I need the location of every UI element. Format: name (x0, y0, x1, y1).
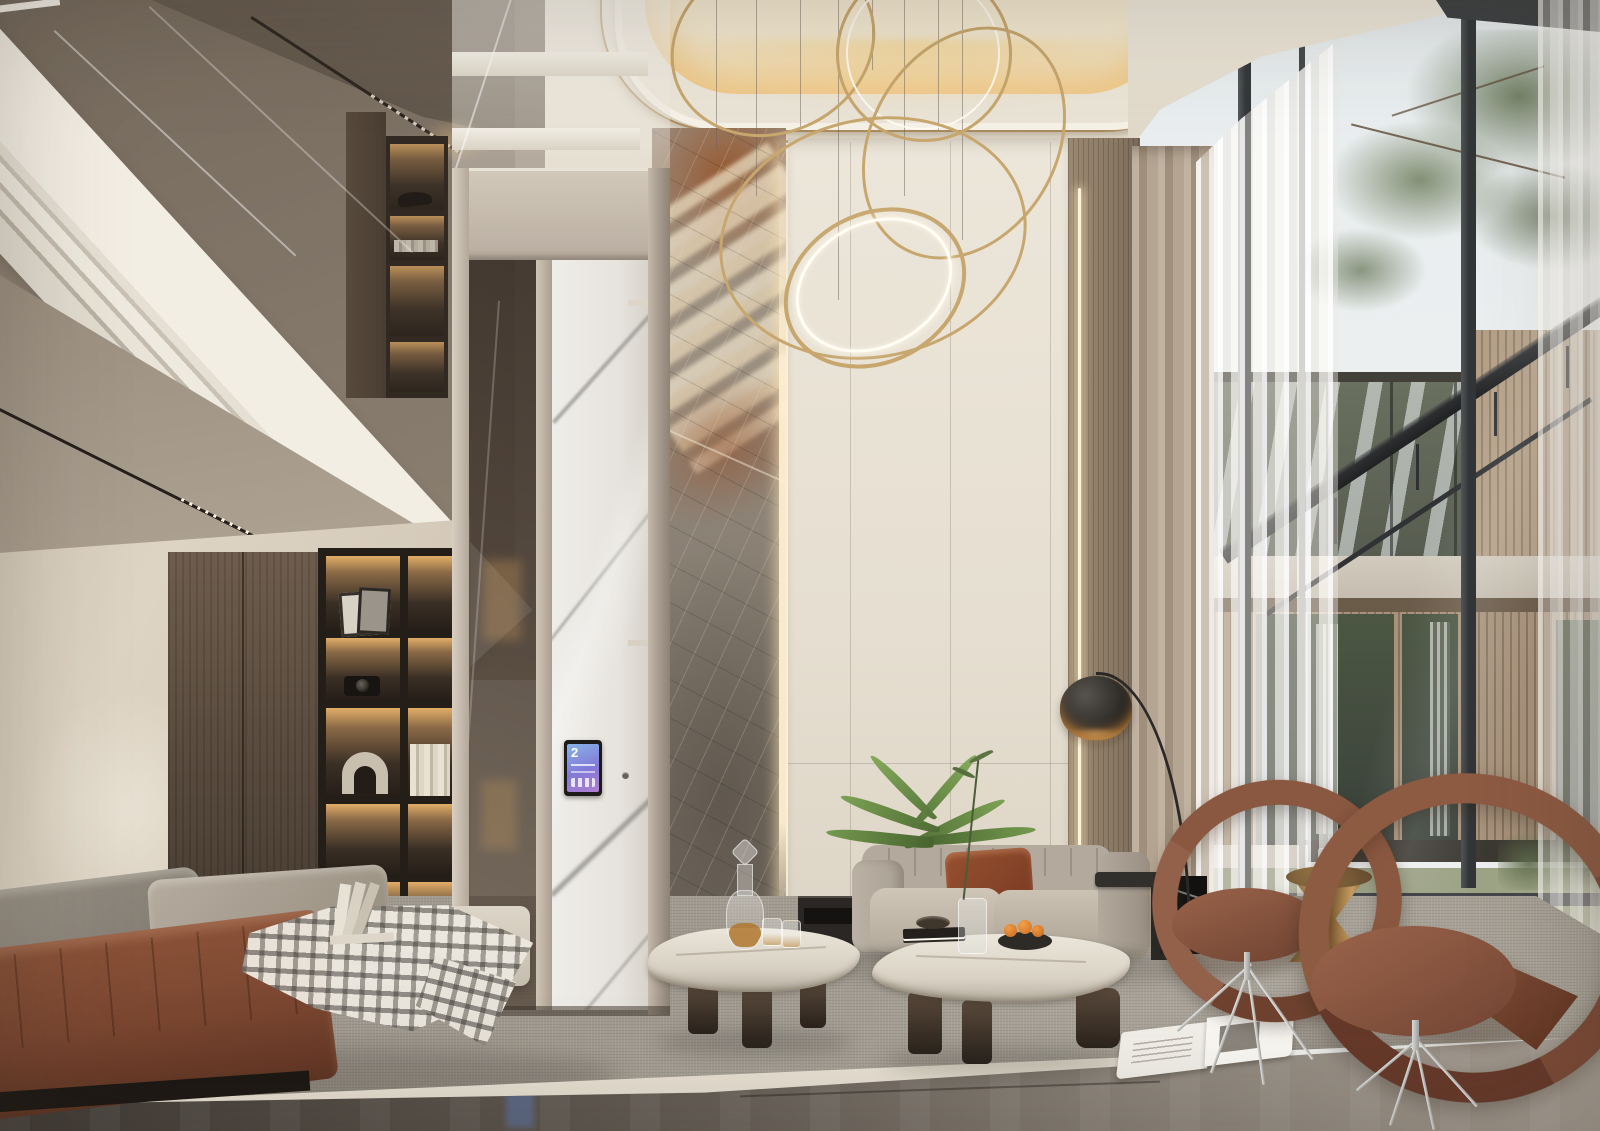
screen-ui-lines (571, 771, 595, 773)
screen-ui-lines (571, 764, 595, 766)
decanter-stopper (731, 838, 759, 866)
whiskey-glass (782, 920, 801, 948)
whiskey-glass (762, 918, 782, 946)
camera-lens (356, 679, 369, 692)
elevator-screen: 2 (564, 740, 602, 796)
decanter (726, 890, 764, 950)
table-leg (1076, 988, 1120, 1048)
niche (408, 556, 452, 632)
chair-center-post (1244, 952, 1250, 980)
arch-sculpture-hole (354, 766, 376, 794)
table-leg (908, 992, 942, 1054)
orange (1018, 920, 1032, 934)
window-mullion (1461, 0, 1476, 888)
living-room-render: 2 (0, 0, 1600, 1131)
elevator-screen-display: 2 (567, 744, 599, 792)
elevator-door-handle (622, 772, 629, 779)
shaft-beam (452, 52, 648, 76)
slat-wall-led-strip (1078, 188, 1081, 868)
interior-niche-glow (483, 560, 521, 640)
lounge-chair-right (1288, 762, 1600, 1131)
interior-niche-glow (481, 780, 517, 850)
panel-seam-horizontal (788, 763, 1068, 764)
elevator-upper-glass (452, 0, 670, 170)
floor-books (330, 880, 400, 950)
whiskey-liquid (729, 923, 761, 947)
small-bowl (916, 916, 950, 929)
picture-frames (357, 587, 391, 635)
elevator-header (452, 168, 670, 260)
decanter-neck (737, 864, 753, 896)
arc-lamp-glow (1068, 730, 1124, 746)
orange (1032, 925, 1044, 937)
screen-ui-buttons (571, 778, 595, 787)
coffee-table-right (870, 850, 1132, 1080)
chair-center-post (1412, 1020, 1419, 1050)
glass-vase (958, 898, 987, 954)
elevator-floor-number: 2 (571, 745, 578, 760)
table-shadow (884, 1046, 1124, 1076)
panel-seam (1050, 142, 1051, 932)
book-lying (330, 932, 394, 944)
shelf-books-vertical (410, 744, 450, 796)
elevator-side-glass-bar (628, 300, 648, 306)
niche (408, 638, 452, 702)
shaft-beam (452, 128, 640, 150)
elevator-side-glass-bar (628, 640, 648, 646)
orange (1004, 924, 1017, 937)
